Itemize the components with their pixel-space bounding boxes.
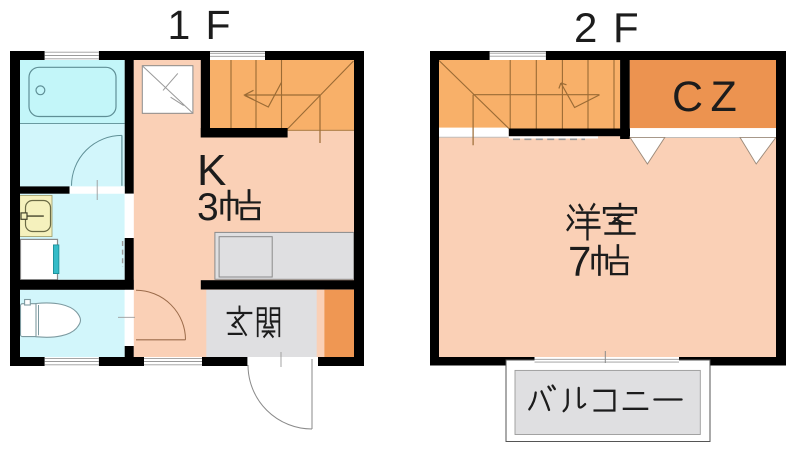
svg-text:CZ: CZ <box>672 73 744 121</box>
svg-text:1: 1 <box>168 2 191 48</box>
svg-text:3: 3 <box>197 186 219 229</box>
svg-text:7: 7 <box>568 238 591 285</box>
svg-text:2: 2 <box>574 4 597 51</box>
svg-text:F: F <box>613 4 639 51</box>
svg-text:F: F <box>206 2 231 48</box>
